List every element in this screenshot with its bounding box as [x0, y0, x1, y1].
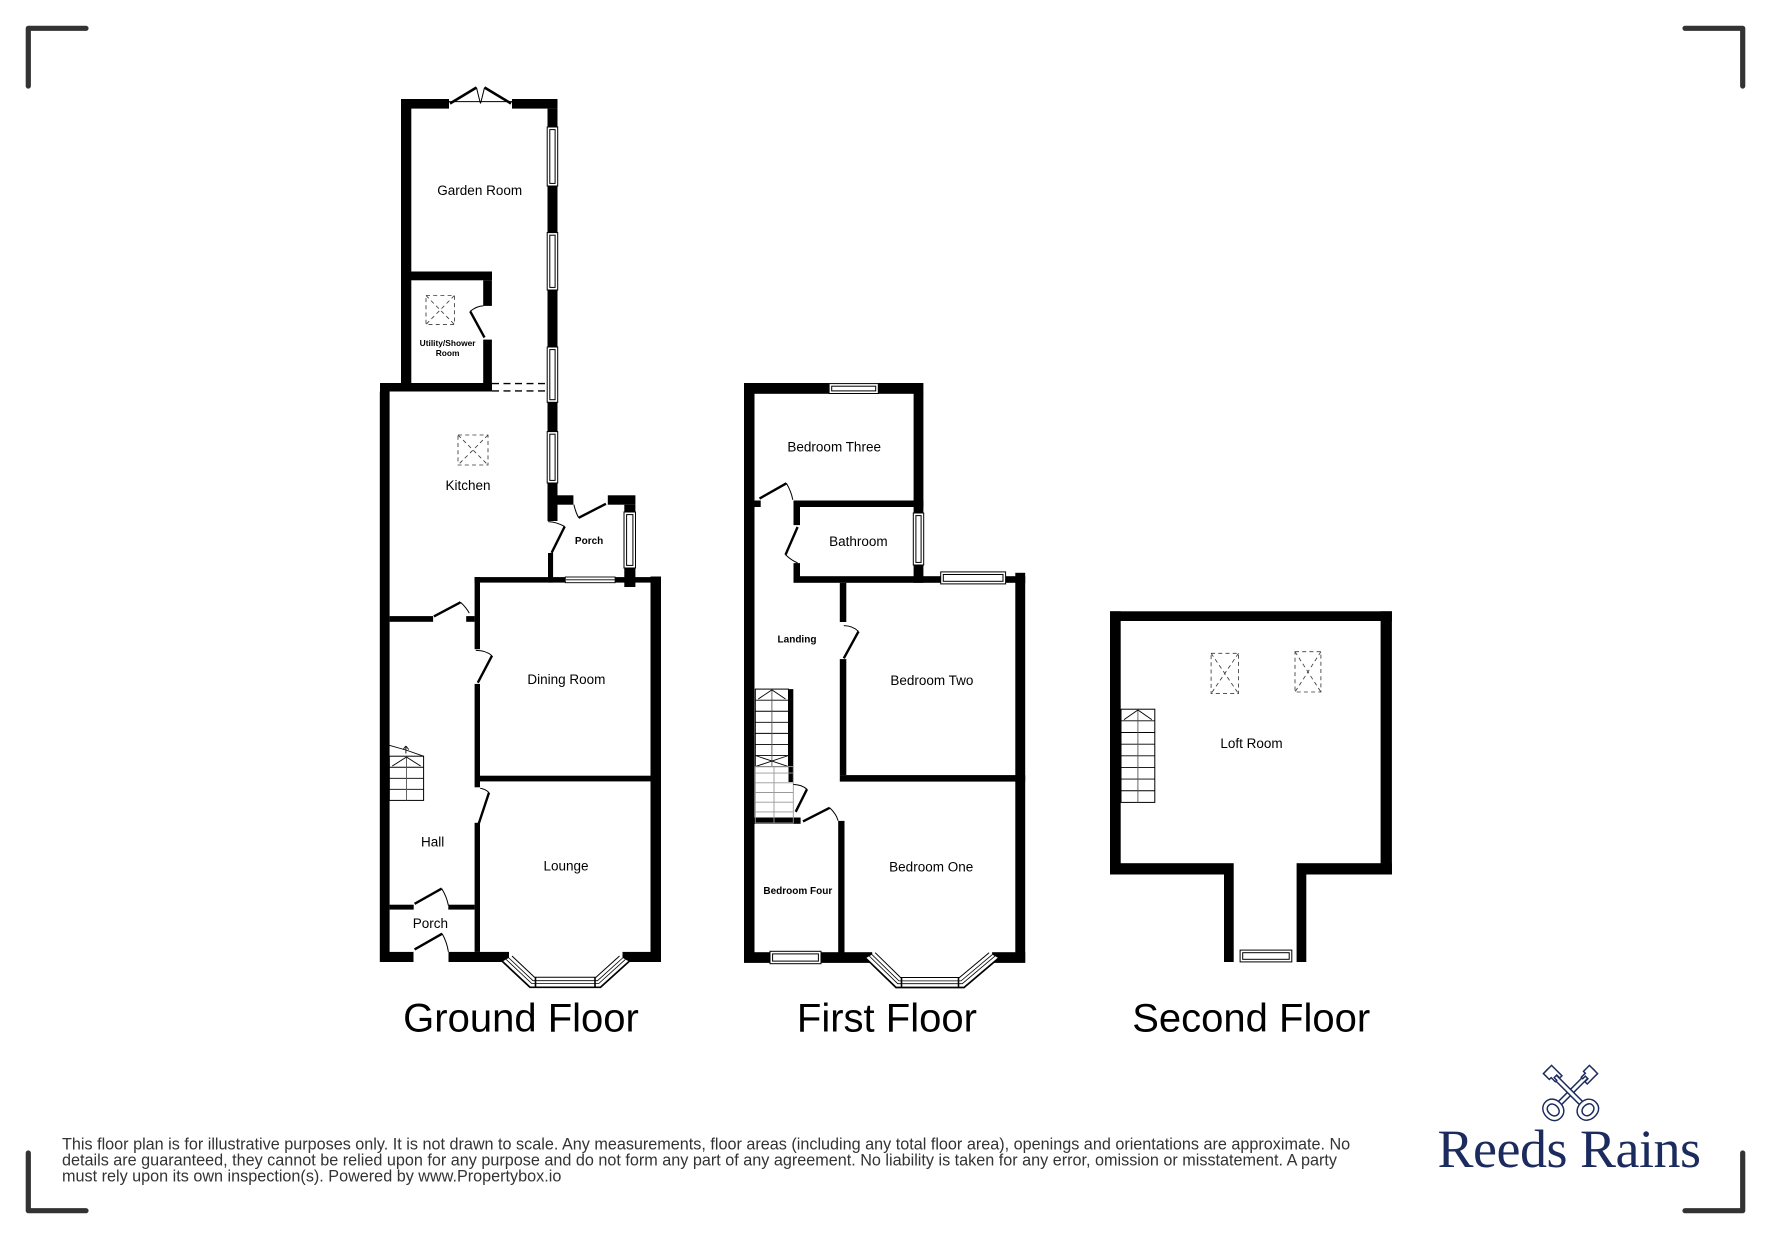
svg-text:Kitchen: Kitchen [445, 478, 490, 493]
svg-text:Reeds Rains: Reeds Rains [1438, 1119, 1701, 1179]
svg-text:Bedroom Three: Bedroom Three [787, 439, 881, 454]
svg-text:Bathroom: Bathroom [829, 534, 888, 549]
svg-text:Dining Room: Dining Room [527, 672, 605, 687]
svg-text:Porch: Porch [413, 916, 448, 931]
svg-text:Garden Room: Garden Room [437, 183, 522, 198]
svg-text:must rely upon its own inspect: must rely upon its own inspection(s). Po… [62, 1168, 561, 1186]
svg-text:Landing: Landing [778, 635, 817, 646]
svg-text:First Floor: First Floor [797, 997, 977, 1041]
svg-text:Utility/Shower: Utility/Shower [420, 338, 477, 348]
svg-text:Bedroom Four: Bedroom Four [763, 886, 832, 897]
svg-text:Bedroom Two: Bedroom Two [890, 673, 973, 688]
svg-text:Porch: Porch [575, 536, 603, 547]
svg-text:Loft Room: Loft Room [1220, 736, 1282, 751]
svg-text:Second Floor: Second Floor [1132, 997, 1370, 1041]
svg-text:Lounge: Lounge [543, 859, 588, 874]
svg-text:Hall: Hall [421, 834, 444, 849]
svg-text:Bedroom One: Bedroom One [889, 860, 973, 875]
svg-text:Room: Room [436, 348, 460, 358]
svg-text:Ground Floor: Ground Floor [403, 997, 639, 1041]
